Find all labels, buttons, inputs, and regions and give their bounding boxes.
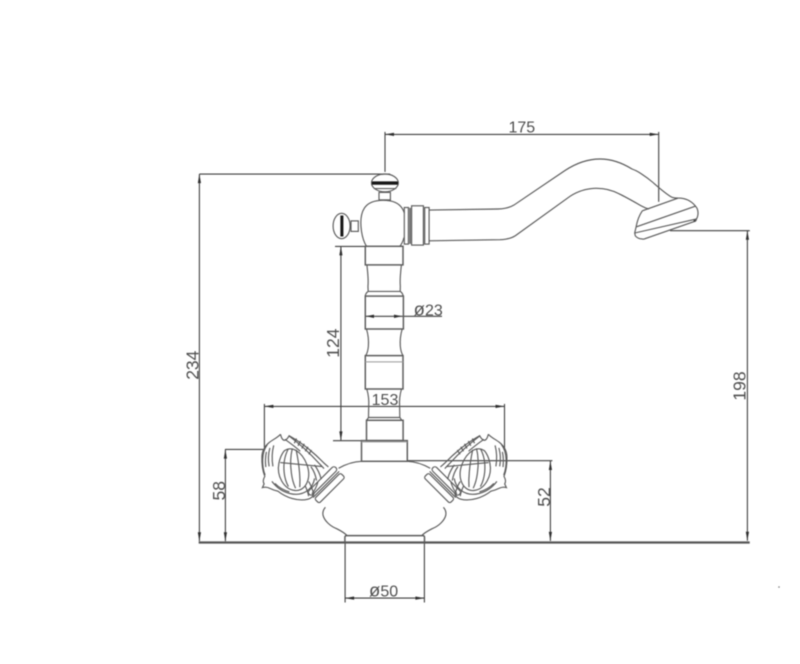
svg-text:234: 234 xyxy=(182,350,202,379)
svg-text:ø50: ø50 xyxy=(369,580,398,601)
svg-text:153: 153 xyxy=(372,392,399,409)
svg-text:198: 198 xyxy=(729,371,749,400)
svg-text:124: 124 xyxy=(323,328,343,357)
svg-text:ø23: ø23 xyxy=(414,299,443,320)
svg-text:58: 58 xyxy=(209,481,229,500)
svg-text:175: 175 xyxy=(508,119,535,136)
svg-text:52: 52 xyxy=(534,487,554,506)
